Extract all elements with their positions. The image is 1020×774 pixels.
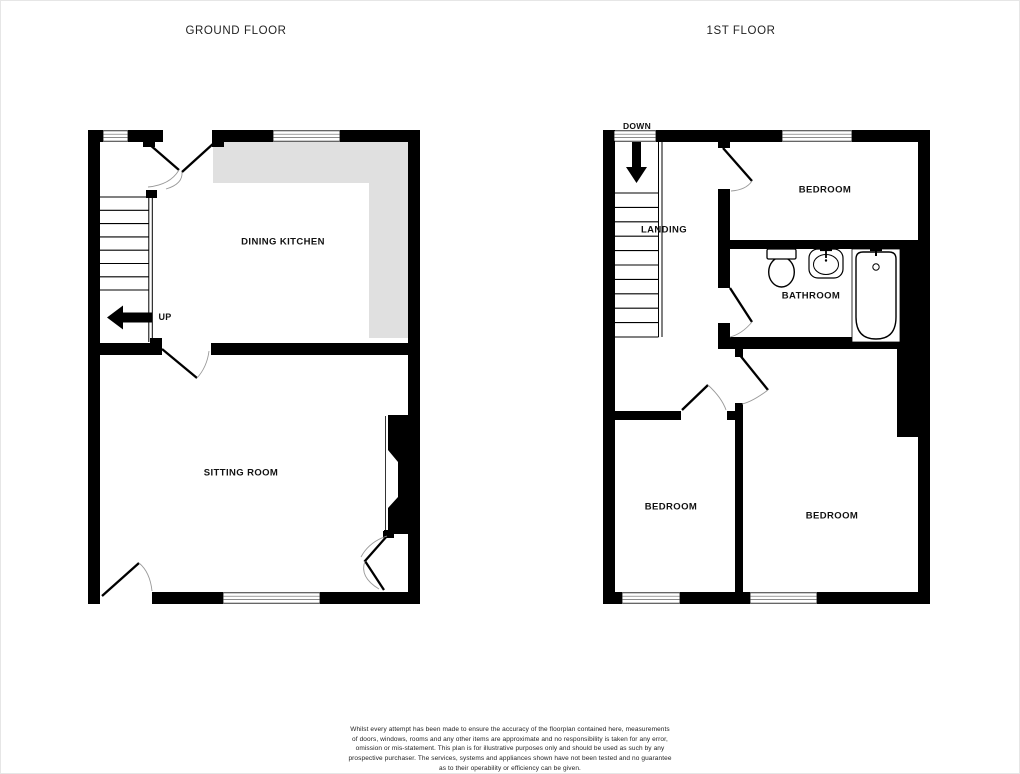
sitting-room-door <box>162 349 209 378</box>
disclaimer-line: as to their operability or efficiency ca… <box>0 764 1020 774</box>
window <box>223 593 320 603</box>
window <box>750 593 817 603</box>
ground-floor-title: GROUND FLOOR <box>185 25 286 37</box>
bedroom-left-door <box>682 385 726 410</box>
bathroom-door <box>730 288 752 337</box>
disclaimer-line: omission or mis-statement. This plan is … <box>0 744 1020 754</box>
first-floor-plan <box>603 130 930 604</box>
room-label-bathroom: BATHROOM <box>782 291 840 302</box>
disclaimer: Whilst every attempt has been made to en… <box>0 725 1020 774</box>
first-floor-stairs <box>615 142 662 337</box>
sink <box>809 249 843 278</box>
ground-floor-plan <box>88 130 420 604</box>
window <box>273 131 340 141</box>
room-label-bedroom-right: BEDROOM <box>806 511 858 522</box>
disclaimer-line: Whilst every attempt has been made to en… <box>0 725 1020 735</box>
bath <box>852 245 900 342</box>
first-floor-title: 1ST FLOOR <box>706 25 775 37</box>
room-label-dining-kitchen: DINING KITCHEN <box>241 237 325 248</box>
bedroom-top-door <box>723 148 752 191</box>
rear-door <box>102 563 152 596</box>
bedroom-right-door <box>739 354 768 404</box>
disclaimer-line: prospective purchaser. The services, sys… <box>0 754 1020 764</box>
stairs-up-label: UP <box>158 312 171 322</box>
down-arrow-icon <box>626 142 647 183</box>
front-entrance-doors <box>148 143 214 189</box>
toilet <box>767 249 796 287</box>
first-floor-walls <box>603 130 930 604</box>
disclaimer-line: of doors, windows, rooms and any other i… <box>0 735 1020 745</box>
window <box>782 131 852 141</box>
room-label-bedroom-top: BEDROOM <box>799 185 851 196</box>
window <box>614 131 656 141</box>
floorplan-page: GROUND FLOOR 1ST FLOOR DINING KITCHEN SI… <box>0 0 1020 774</box>
stairs-down-label: DOWN <box>623 121 651 131</box>
bifold-door <box>361 536 387 590</box>
fireplace <box>384 415 409 534</box>
room-label-sitting-room: SITTING ROOM <box>204 468 278 479</box>
room-label-landing: LANDING <box>641 225 687 236</box>
window <box>103 131 128 141</box>
floorplan-canvas <box>0 0 1020 774</box>
room-label-bedroom-left: BEDROOM <box>645 502 697 513</box>
up-arrow-icon <box>107 306 152 330</box>
ground-floor-stairs <box>100 190 157 342</box>
window <box>622 593 680 603</box>
